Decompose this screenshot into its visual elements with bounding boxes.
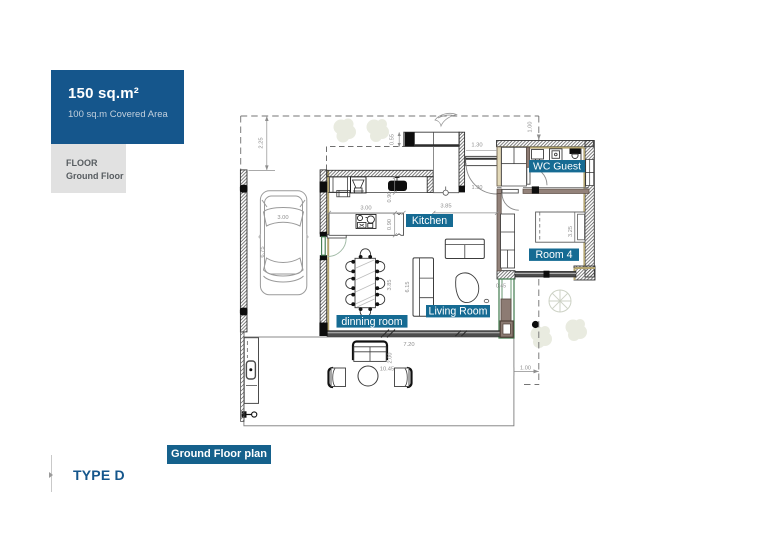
svg-text:dinning room: dinning room xyxy=(341,316,402,328)
svg-text:7.20: 7.20 xyxy=(403,342,414,348)
svg-text:WC Guest: WC Guest xyxy=(533,162,581,173)
svg-text:1.00: 1.00 xyxy=(528,122,534,133)
svg-text:10.45: 10.45 xyxy=(380,367,395,373)
svg-text:1.30: 1.30 xyxy=(472,185,483,191)
svg-text:Living Room: Living Room xyxy=(429,306,488,318)
svg-text:0.90: 0.90 xyxy=(387,219,393,230)
svg-text:0.45: 0.45 xyxy=(496,284,506,290)
svg-text:6.75: 6.75 xyxy=(260,246,266,257)
svg-text:3.85: 3.85 xyxy=(387,280,393,291)
svg-text:2.00: 2.00 xyxy=(388,353,394,364)
svg-text:0.55: 0.55 xyxy=(390,134,396,145)
svg-text:1.00: 1.00 xyxy=(520,366,531,372)
svg-text:3.00: 3.00 xyxy=(360,206,371,212)
svg-text:3.00: 3.00 xyxy=(277,215,288,221)
svg-text:Kitchen: Kitchen xyxy=(412,215,447,227)
svg-text:Room 4: Room 4 xyxy=(535,249,572,261)
svg-text:1.30: 1.30 xyxy=(471,143,482,149)
svg-text:3.25: 3.25 xyxy=(568,226,574,237)
svg-text:0.90: 0.90 xyxy=(387,192,393,203)
svg-text:6.15: 6.15 xyxy=(405,282,411,293)
svg-text:2.25: 2.25 xyxy=(259,137,265,148)
svg-text:3.85: 3.85 xyxy=(440,204,451,210)
